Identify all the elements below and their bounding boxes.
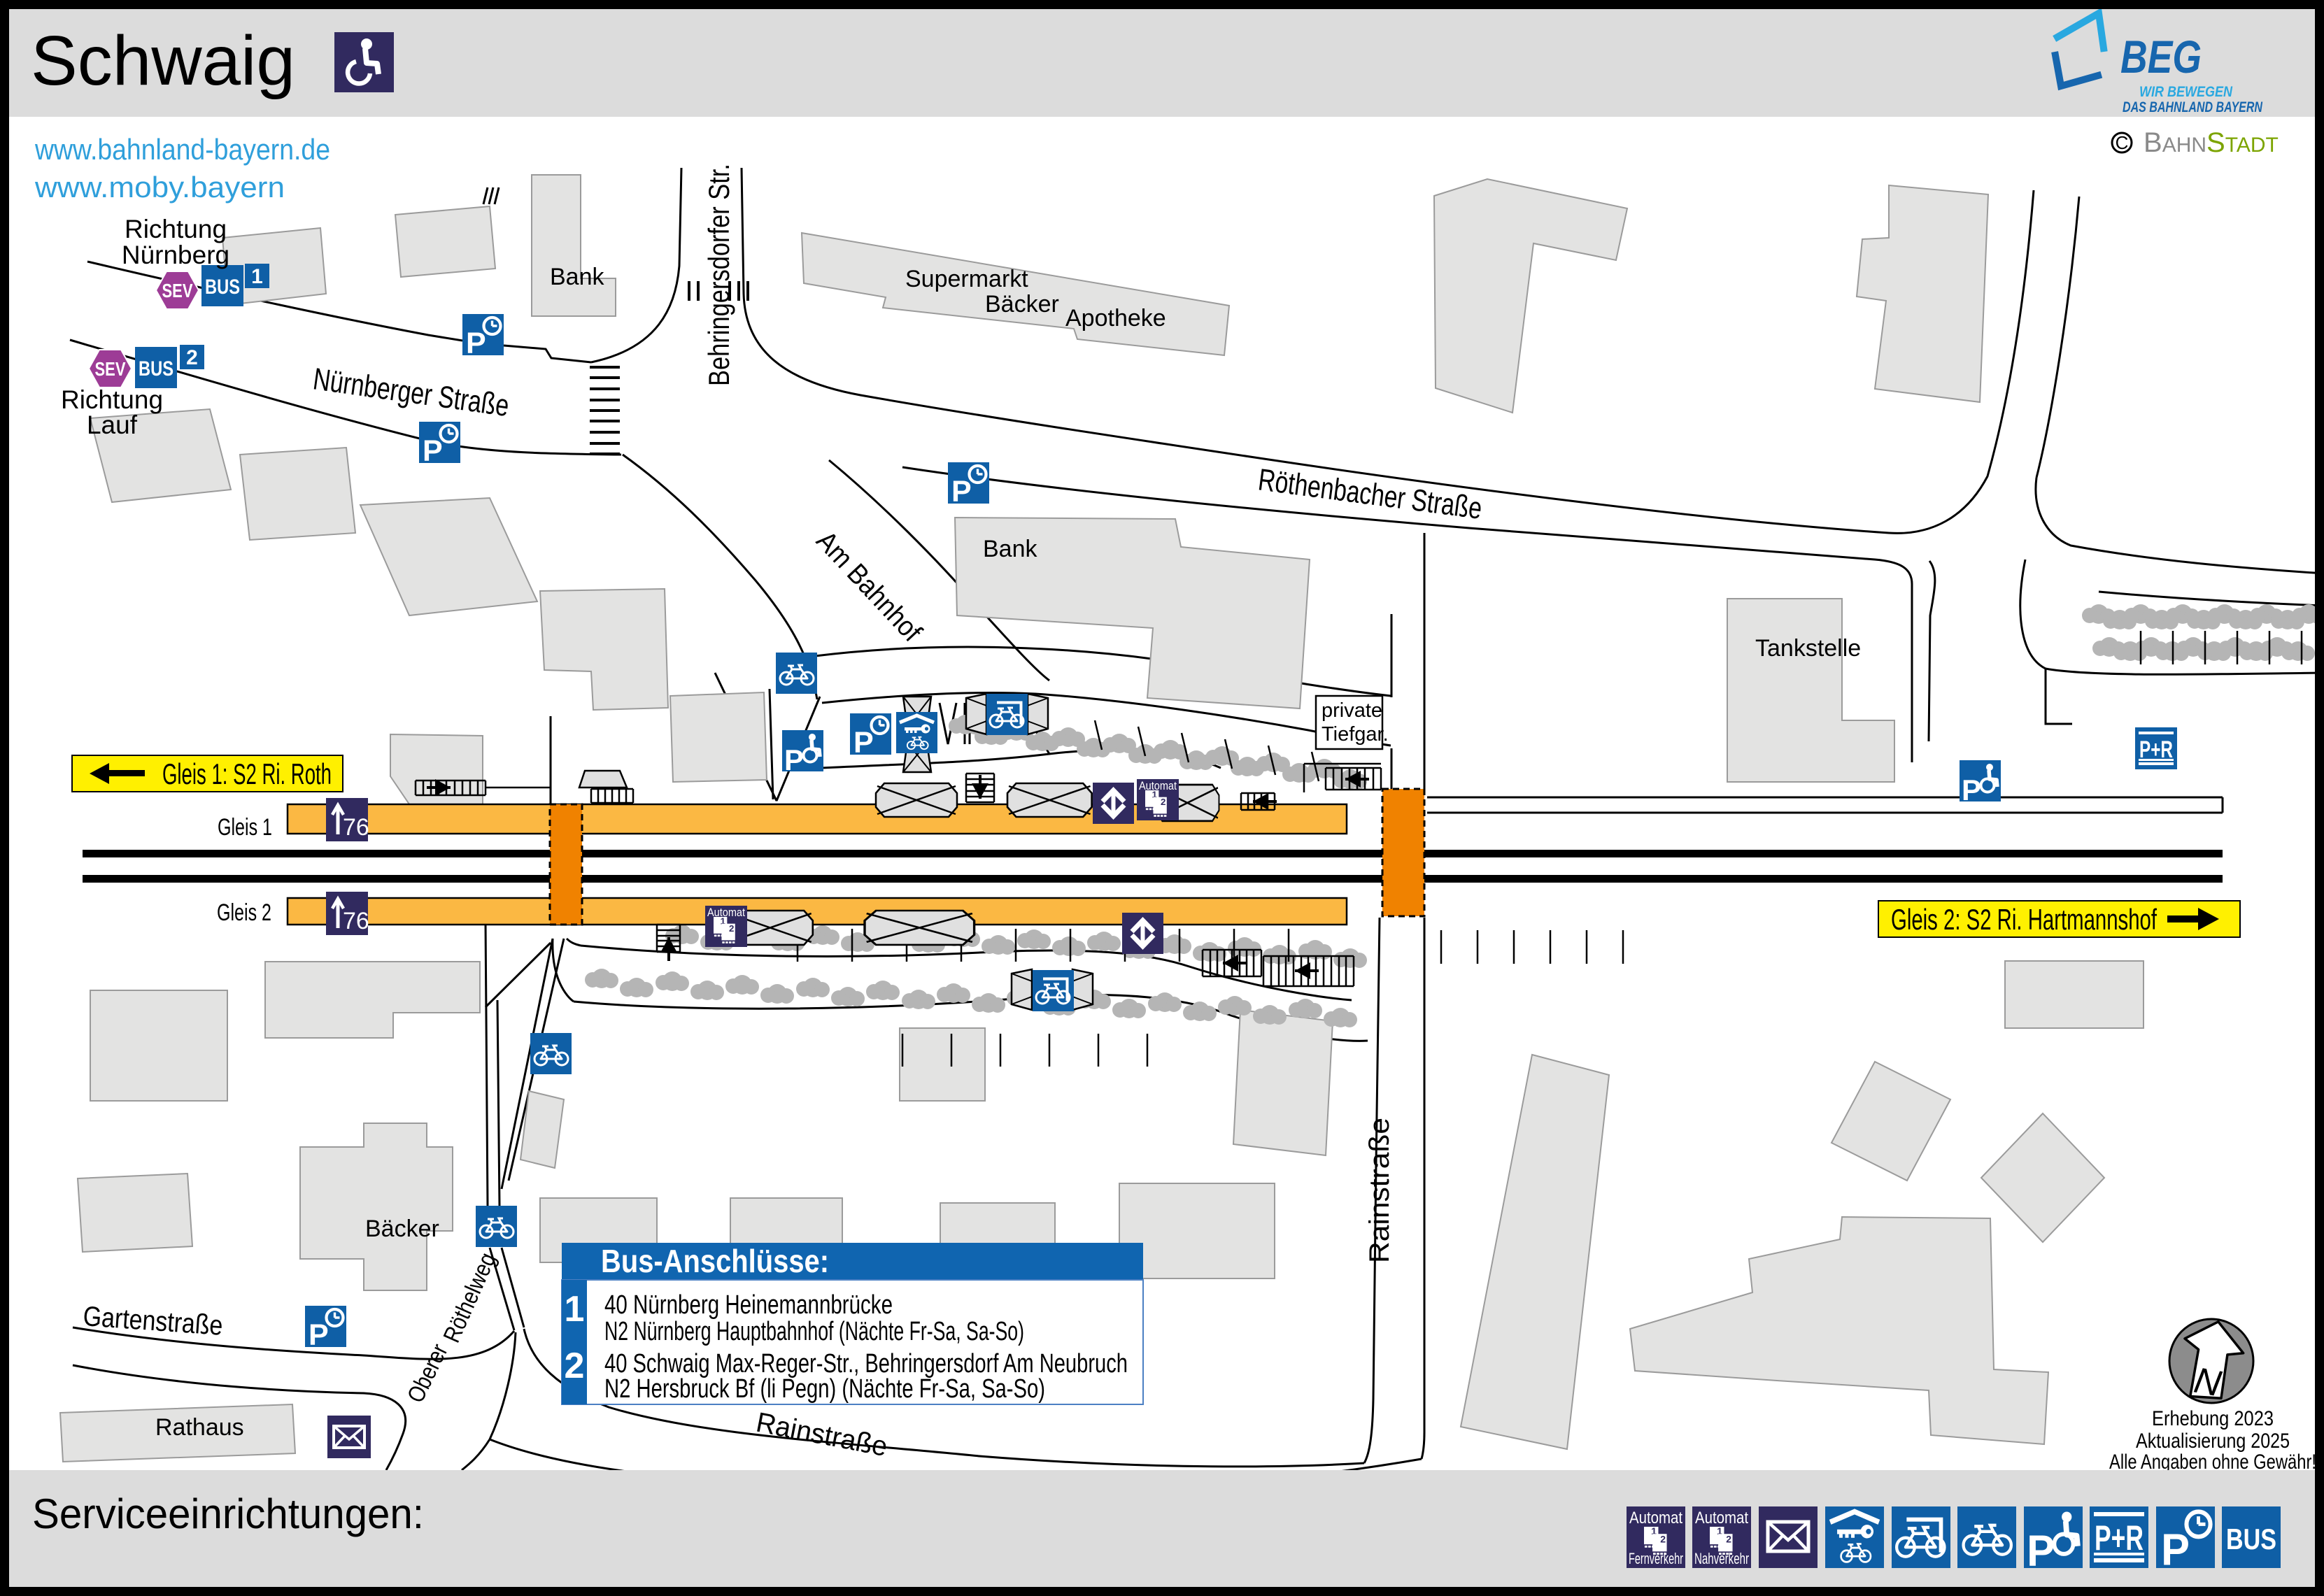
svg-text:Apotheke: Apotheke xyxy=(1065,305,1166,332)
svg-text:Bus-Anschlüsse:: Bus-Anschlüsse: xyxy=(601,1243,829,1279)
svg-text:Tiefgar.: Tiefgar. xyxy=(1322,723,1389,746)
svg-text:Gleis 1: S2 Ri. Roth: Gleis 1: S2 Ri. Roth xyxy=(162,757,332,790)
svg-text:N2 Hersbruck Bf (li Pegn) (Näc: N2 Hersbruck Bf (li Pegn) (Nächte Fr-Sa,… xyxy=(604,1374,1045,1404)
svg-text:Richtung: Richtung xyxy=(125,215,227,243)
svg-text:Gleis 2: S2 Ri. Hartmannshof: Gleis 2: S2 Ri. Hartmannshof xyxy=(1891,903,2157,936)
svg-text:Bäcker: Bäcker xyxy=(985,291,1059,318)
svg-text:www.bahnland-bayern.de: www.bahnland-bayern.de xyxy=(34,133,330,166)
svg-text:Nürnberg: Nürnberg xyxy=(122,241,229,269)
svg-text:1: 1 xyxy=(251,265,263,288)
svg-text:Automat: Automat xyxy=(1695,1509,1748,1527)
svg-text:P+R: P+R xyxy=(2095,1518,2144,1558)
svg-text:Erhebung 2023: Erhebung 2023 xyxy=(2152,1407,2274,1430)
svg-text:Richtung: Richtung xyxy=(61,385,163,414)
svg-text:2: 2 xyxy=(186,346,198,369)
svg-text:40 Nürnberg Heinemannbrücke: 40 Nürnberg Heinemannbrücke xyxy=(604,1290,893,1320)
svg-text:Aktualisierung 2025: Aktualisierung 2025 xyxy=(2136,1430,2290,1453)
svg-text:Rainstraße: Rainstraße xyxy=(1364,1118,1395,1263)
svg-text:private: private xyxy=(1322,699,1382,722)
svg-text:Lauf: Lauf xyxy=(87,411,138,439)
svg-text:BEG: BEG xyxy=(2120,31,2202,83)
svg-text:Bank: Bank xyxy=(550,264,604,290)
svg-text:Supermarkt: Supermarkt xyxy=(905,266,1028,292)
svg-text:N2 Nürnberg Hauptbahnhof (Näch: N2 Nürnberg Hauptbahnhof (Nächte Fr-Sa, … xyxy=(604,1317,1024,1346)
svg-text:Tankstelle: Tankstelle xyxy=(1755,635,1861,662)
svg-text:Bank: Bank xyxy=(983,536,1037,562)
svg-text:DAS BAHNLAND BAYERN: DAS BAHNLAND BAYERN xyxy=(2123,99,2263,115)
svg-text:Schwaig: Schwaig xyxy=(31,22,295,100)
svg-text:BUS: BUS xyxy=(2226,1523,2276,1555)
svg-text:C: C xyxy=(2116,132,2129,153)
svg-text:Bäcker: Bäcker xyxy=(365,1216,439,1242)
svg-text:Serviceeinrichtungen:: Serviceeinrichtungen: xyxy=(32,1490,424,1537)
svg-text:Rathaus: Rathaus xyxy=(155,1414,244,1441)
svg-text:www.moby.bayern: www.moby.bayern xyxy=(34,171,285,204)
svg-text:Automat: Automat xyxy=(1629,1509,1682,1527)
svg-text:Fernverkehr: Fernverkehr xyxy=(1629,1550,1683,1567)
svg-text:Nahverkehr: Nahverkehr xyxy=(1694,1550,1749,1567)
svg-text:2: 2 xyxy=(565,1346,585,1386)
svg-text:Behringersdorfer Str.: Behringersdorfer Str. xyxy=(702,164,735,386)
svg-text:1: 1 xyxy=(565,1289,585,1330)
svg-text:Gleis 1: Gleis 1 xyxy=(218,814,272,841)
svg-text:Gleis 2: Gleis 2 xyxy=(217,899,271,926)
svg-text:WIR BEWEGEN: WIR BEWEGEN xyxy=(2139,84,2233,100)
